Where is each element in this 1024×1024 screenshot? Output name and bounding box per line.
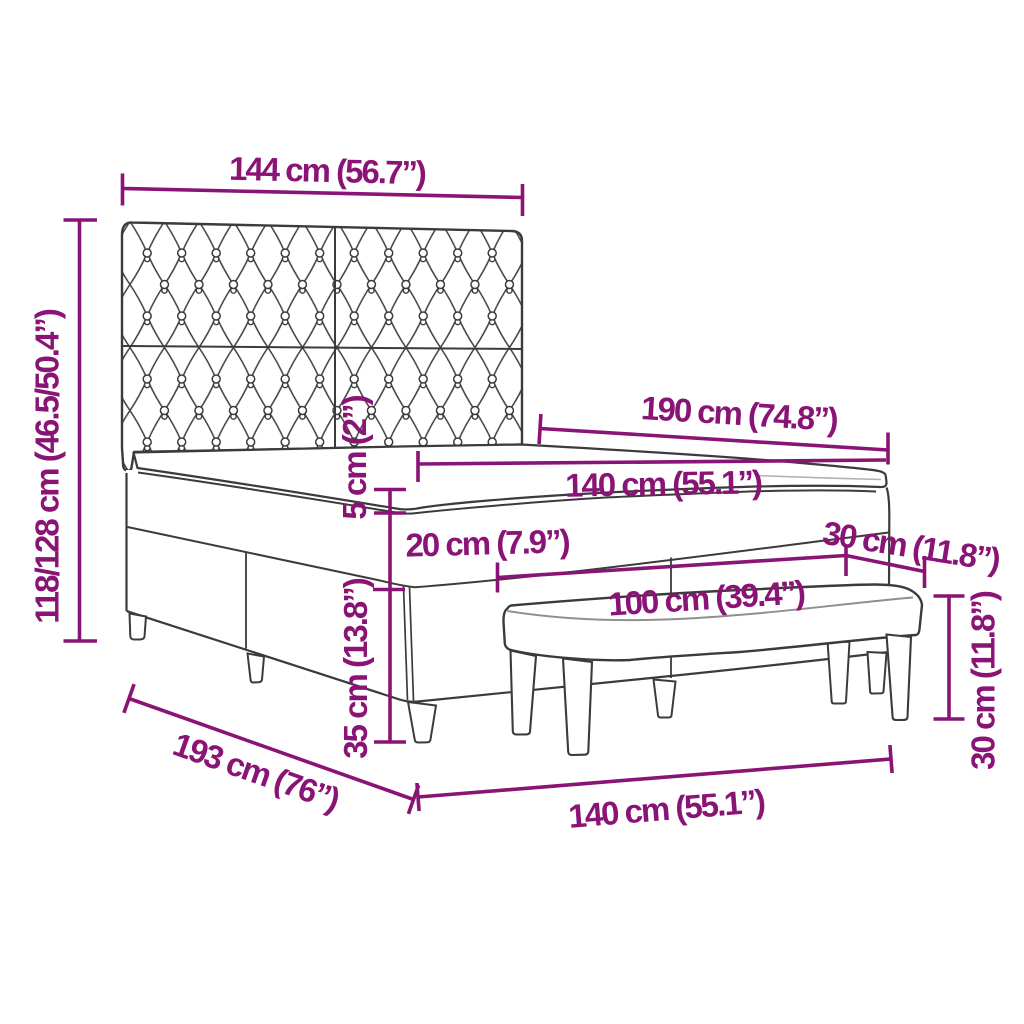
svg-text:5 cm (2”): 5 cm (2”) — [336, 395, 373, 519]
svg-text:140 cm (55.1”): 140 cm (55.1”) — [567, 782, 766, 835]
svg-text:35 cm (13.8”): 35 cm (13.8”) — [337, 578, 374, 758]
svg-text:144 cm (56.7”): 144 cm (56.7”) — [229, 150, 427, 191]
svg-text:30 cm (11.8”): 30 cm (11.8”) — [965, 591, 1002, 770]
svg-text:140 cm (55.1”): 140 cm (55.1”) — [565, 463, 762, 503]
svg-text:193 cm (76”): 193 cm (76”) — [168, 725, 344, 818]
svg-text:118/128 cm (46.5/50.4”): 118/128 cm (46.5/50.4”) — [29, 309, 66, 624]
svg-text:20 cm (7.9”): 20 cm (7.9”) — [405, 522, 570, 563]
svg-text:190 cm (74.8”): 190 cm (74.8”) — [640, 389, 839, 438]
